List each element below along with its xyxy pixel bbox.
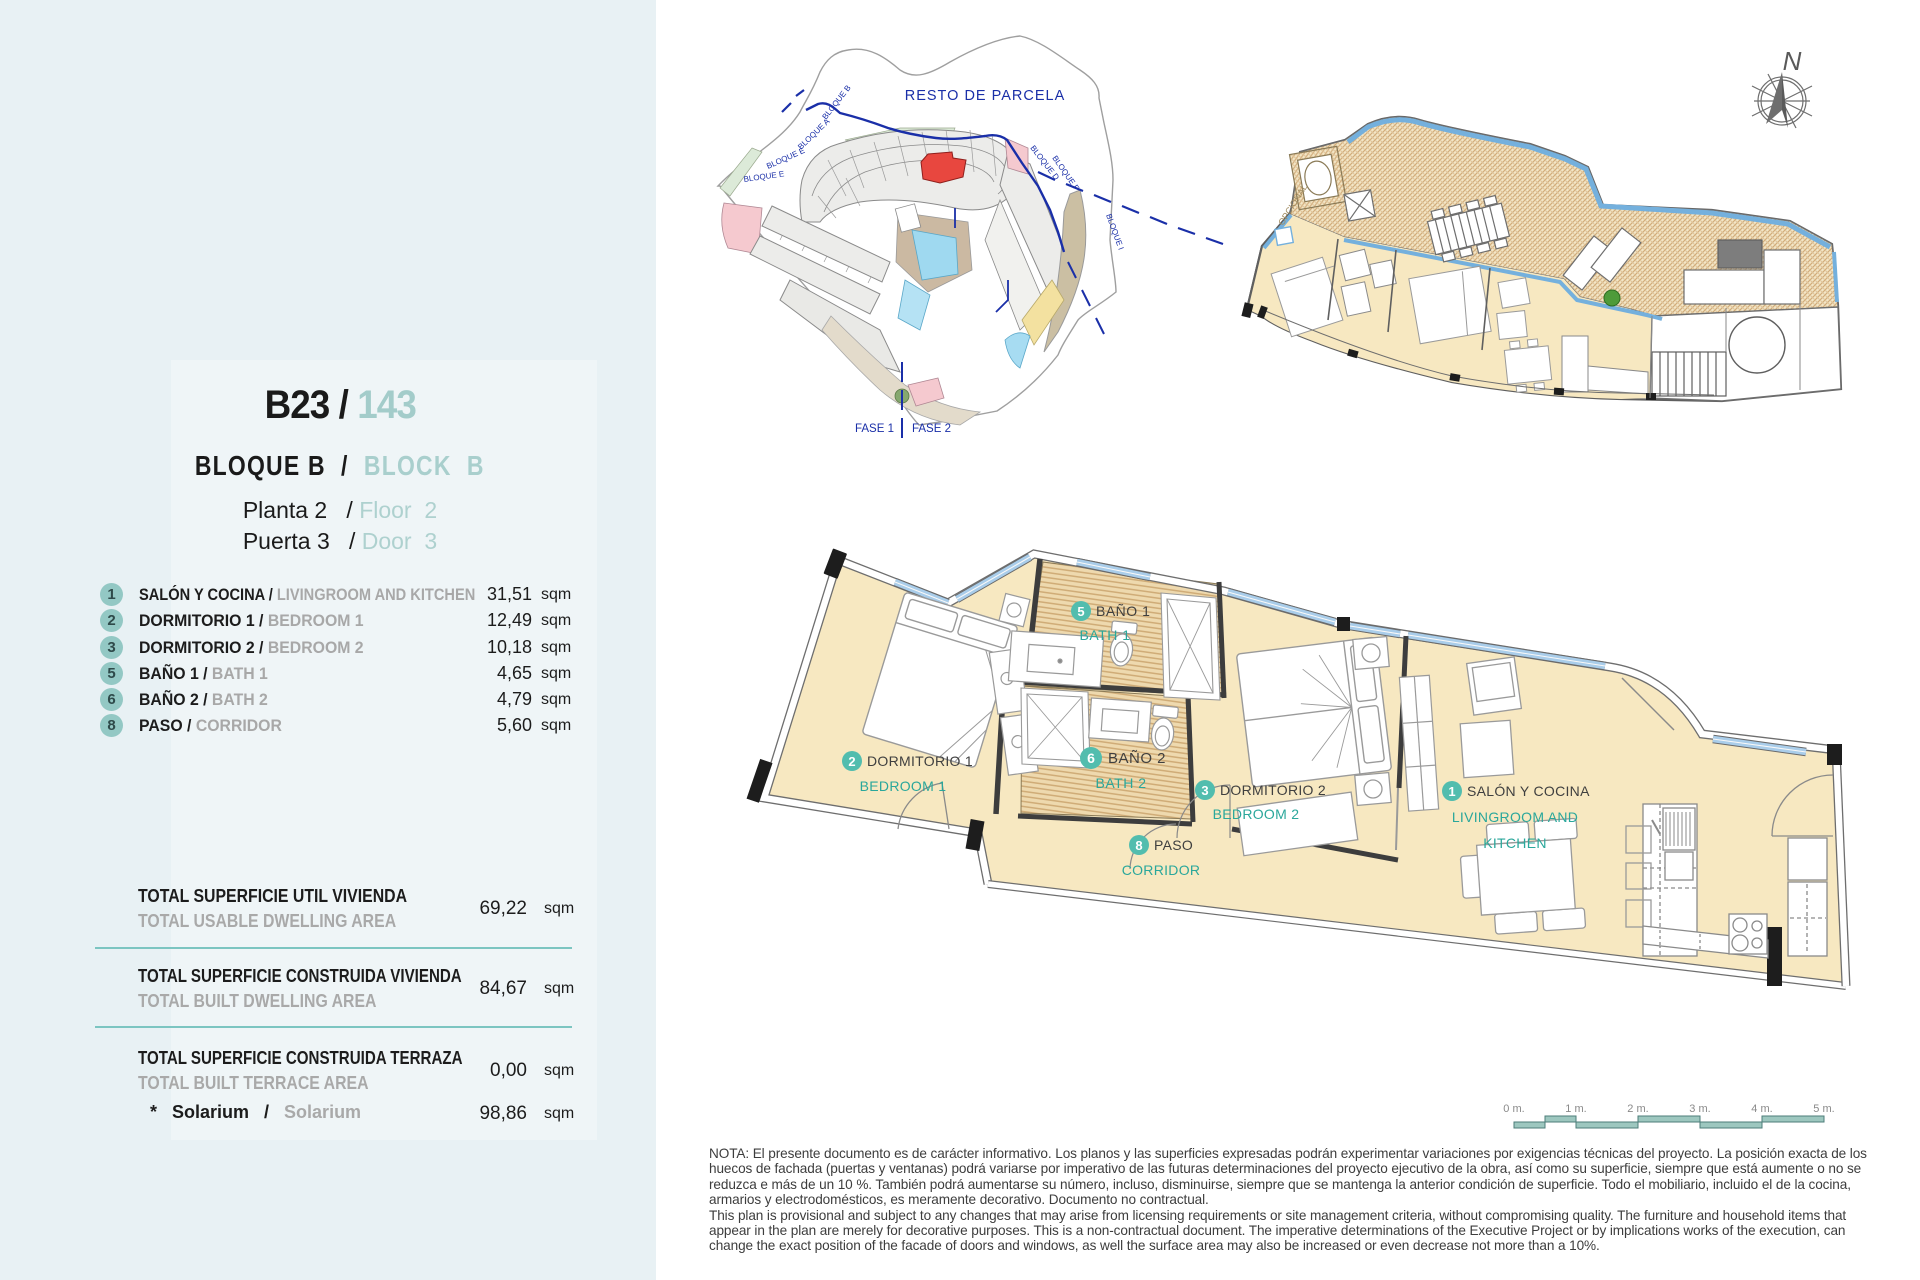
svg-text:3: 3: [1201, 783, 1208, 798]
svg-text:LIVINGROOM AND: LIVINGROOM AND: [1452, 809, 1578, 825]
svg-text:5 m.: 5 m.: [1813, 1103, 1834, 1115]
svg-text:4 m.: 4 m.: [1751, 1103, 1772, 1115]
svg-text:2: 2: [848, 754, 855, 769]
svg-text:3 m.: 3 m.: [1689, 1103, 1710, 1115]
svg-text:PASO: PASO: [1154, 837, 1193, 853]
svg-text:0 m.: 0 m.: [1503, 1103, 1524, 1115]
svg-text:2 m.: 2 m.: [1627, 1103, 1648, 1115]
svg-text:1 m.: 1 m.: [1565, 1103, 1586, 1115]
svg-text:FASE 1: FASE 1: [855, 423, 894, 435]
svg-text:DORMITORIO 2: DORMITORIO 2: [1220, 782, 1326, 798]
svg-text:BEDROOM 1: BEDROOM 1: [860, 778, 947, 794]
svg-text:CORRIDOR: CORRIDOR: [1122, 862, 1201, 878]
svg-text:1: 1: [1448, 784, 1455, 799]
svg-text:8: 8: [1135, 838, 1142, 853]
svg-text:SALÓN Y COCINA: SALÓN Y COCINA: [1467, 783, 1590, 799]
svg-text:BATH 2: BATH 2: [1096, 775, 1147, 791]
svg-text:BAÑO 1: BAÑO 1: [1096, 603, 1150, 619]
svg-text:KITCHEN: KITCHEN: [1483, 835, 1547, 851]
svg-text:N: N: [1783, 46, 1802, 76]
svg-text:6: 6: [1087, 750, 1095, 766]
svg-text:BEDROOM 2: BEDROOM 2: [1213, 806, 1300, 822]
svg-text:BATH 1: BATH 1: [1080, 627, 1131, 643]
svg-text:RESTO DE PARCELA: RESTO DE PARCELA: [905, 88, 1066, 104]
svg-text:FASE 2: FASE 2: [912, 423, 951, 435]
svg-text:5: 5: [1077, 604, 1084, 619]
svg-text:DORMITORIO 1: DORMITORIO 1: [867, 753, 973, 769]
svg-text:BAÑO 2: BAÑO 2: [1108, 750, 1166, 767]
